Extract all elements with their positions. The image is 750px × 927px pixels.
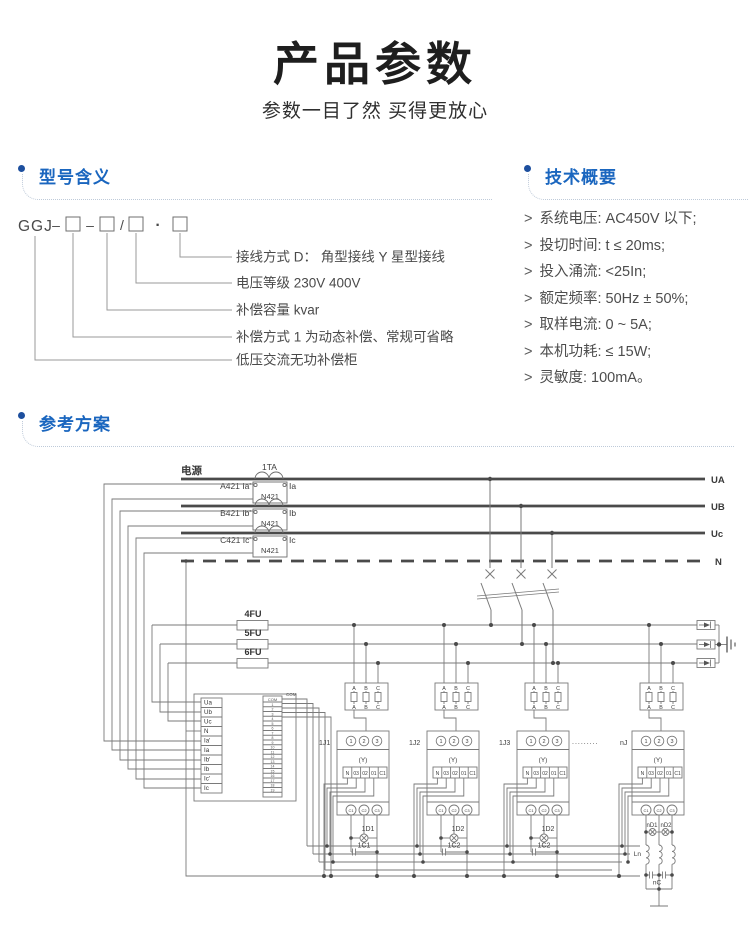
controller-terminal-label: Ia' <box>204 738 210 745</box>
dotted-rule <box>22 174 492 200</box>
fuse-label: 6FU <box>244 647 261 657</box>
gt-marker: > <box>524 312 532 339</box>
ct-out: Ia <box>289 481 296 491</box>
gt-marker: > <box>524 206 532 233</box>
tech-section-header: 技术概要 <box>524 163 748 205</box>
strip-number: 17 <box>271 779 275 783</box>
module-id: 1J2 <box>409 740 420 747</box>
fuse-label: 4FU <box>244 609 261 619</box>
strip-number: 2 <box>272 708 274 712</box>
bus-label-uc: Uc <box>711 529 723 540</box>
power-buses <box>181 479 705 561</box>
strip-number: 16 <box>271 774 275 778</box>
strip-number: 14 <box>271 765 275 769</box>
strip-number: 9 <box>272 741 274 745</box>
ct-mid: N421 <box>261 492 279 501</box>
controller-terminal-label: Ib <box>204 766 210 773</box>
strip-number: 3 <box>272 712 274 716</box>
surge-arresters <box>697 621 727 668</box>
controller-terminal-label: Ia <box>204 747 210 754</box>
module-id: 1J1 <box>319 740 330 747</box>
controller-terminal-label: N <box>204 728 208 735</box>
fuse-label: 5FU <box>244 628 261 638</box>
gt-marker: > <box>524 339 532 366</box>
strip-number: 18 <box>271 784 275 788</box>
strip-number: 15 <box>271 769 275 773</box>
module-ellipsis: ......... <box>572 739 599 746</box>
inductor-coil <box>672 845 675 864</box>
inductor-coil <box>646 845 649 864</box>
module-id: nJ <box>620 740 627 747</box>
ct-group-label: 1TA <box>262 462 277 472</box>
bus-label-ub: UB <box>711 502 725 513</box>
tech-spec-item: >额定频率: 50Hz ± 50%; <box>524 286 750 313</box>
cap-label: nC <box>653 880 662 887</box>
controller-terminal-label: Ua <box>204 700 212 707</box>
tech-spec-item: >取样电流: 0 ~ 5A; <box>524 312 750 339</box>
lamp-label: 1D2 <box>542 826 555 833</box>
bullet-dot-icon <box>524 165 531 172</box>
strip-number: 12 <box>271 755 275 759</box>
page-subtitle: 参数一目了然 买得更放心 <box>0 96 750 123</box>
controller-terminal-label: Ib' <box>204 757 210 764</box>
cap-label: 1C2 <box>448 843 461 850</box>
tech-spec-item: >投入涌流: <25In; <box>524 259 750 286</box>
module-nj: ......... nJ nD1 nD2 Ln nC <box>572 623 684 906</box>
model-code-sep: – <box>52 217 60 233</box>
bullet-dot-icon <box>18 165 25 172</box>
tech-spec-item: >投切时间: t ≤ 20ms; <box>524 233 750 260</box>
model-label: 补偿方式 1 为动态补偿、常规可省略 <box>236 330 454 345</box>
module-1j2: 1J2 1D2 1C2 <box>409 623 479 878</box>
capacitor-module-body <box>517 683 569 815</box>
module-1j3: 1J3 1D2 1C2 <box>499 623 569 878</box>
tech-spec-text: 灵敏度: 100mA。 <box>539 365 651 392</box>
strip-number: 19 <box>271 788 275 792</box>
cap-label: 1C1 <box>358 843 371 850</box>
ct-labels: 1TA A421 Ia' N421 Ia B421 Ib' N421 Ib C4… <box>220 462 296 555</box>
dotted-rule <box>528 174 748 200</box>
lamp-label: nD2 <box>660 823 672 829</box>
ct-out: Ib <box>289 508 296 518</box>
junction-dot <box>717 642 721 646</box>
fuse-symbol <box>237 659 268 669</box>
gt-marker: > <box>524 365 532 392</box>
left-wiring-mesh <box>104 484 640 876</box>
page-title: 产品参数 <box>0 28 750 94</box>
module-1j1: 1J1 1D1 1C1 <box>319 623 389 878</box>
controller-terminal-label: Ub <box>204 709 212 716</box>
current-transformers <box>253 472 287 557</box>
strip-note: COM <box>286 692 297 697</box>
circuit-diagram: A B C A B C 1 2 3 (Y) N 03 02 <box>0 440 750 927</box>
controller-terminal-label: Uc <box>204 719 212 726</box>
capacitor-module-body <box>427 683 479 815</box>
tech-spec-text: 系统电压: AC450V 以下; <box>539 206 696 233</box>
distribution-lines <box>152 621 697 669</box>
strip-number: 4 <box>272 717 274 721</box>
model-label: 补偿容量 kvar <box>236 302 320 318</box>
inductor-label: Ln <box>634 851 642 858</box>
model-label: 接线方式 D： 角型接线 Y 星型接线 <box>236 249 445 265</box>
ct-mid: N421 <box>261 519 279 528</box>
ct-tag: C421 Ic' <box>220 535 251 545</box>
bus-label-ua: UA <box>711 475 725 486</box>
module-id: 1J3 <box>499 740 510 747</box>
strip-number: 1 <box>272 703 274 707</box>
ct-tag: B421 Ib' <box>220 508 251 518</box>
tech-spec-item: >系统电压: AC450V 以下; <box>524 206 750 233</box>
controller-terminal-label: Ic' <box>204 776 210 783</box>
gt-marker: > <box>524 286 532 313</box>
model-section-header: 型号含义 <box>18 163 492 205</box>
strip-number: 11 <box>271 750 275 754</box>
strip-number: 7 <box>272 731 274 735</box>
bullet-dot-icon <box>18 412 25 419</box>
model-code-lines <box>35 217 232 360</box>
model-code-diagram: GGJ – – / · 接线方式 D： 角型接线 Y 星型接线 电压等级 230… <box>18 206 498 378</box>
lamp-label: 1D2 <box>452 826 465 833</box>
model-label: 低压交流无功补偿柜 <box>236 352 358 368</box>
junction-dot <box>184 559 188 563</box>
tech-spec-text: 额定频率: 50Hz ± 50%; <box>539 286 688 313</box>
strip-number: 6 <box>272 727 274 731</box>
junction-dot <box>329 874 333 878</box>
cap-label: 1C2 <box>538 843 551 850</box>
gt-marker: > <box>524 259 532 286</box>
power-label: 电源 <box>181 464 202 477</box>
strip-number: 5 <box>272 722 274 726</box>
ct-mid: N421 <box>261 546 279 555</box>
model-label: 电压等级 230V 400V <box>236 275 361 291</box>
lamp-label: 1D1 <box>362 826 375 833</box>
tech-spec-text: 取样电流: 0 ~ 5A; <box>539 312 651 339</box>
controller-terminal-label: Ic <box>204 785 209 792</box>
tech-spec-item: >灵敏度: 100mA。 <box>524 365 750 392</box>
strip-number: 10 <box>271 746 275 750</box>
fuse-labels: 4FU 5FU 6FU <box>244 609 261 657</box>
model-code-sep: · <box>155 217 160 234</box>
control-wire-bundle <box>282 699 640 876</box>
lamp-label: nD1 <box>646 823 658 829</box>
model-code-sep: – <box>86 217 94 233</box>
strip-number: 13 <box>271 760 275 764</box>
ct-tag: A421 Ia' <box>220 481 251 491</box>
tech-spec-item: >本机功耗: ≤ 15W; <box>524 339 750 366</box>
gt-marker: > <box>524 233 532 260</box>
strip-header: COM <box>268 697 277 702</box>
strip-number: 8 <box>272 736 274 740</box>
tech-spec-text: 本机功耗: ≤ 15W; <box>539 339 651 366</box>
ground-icon <box>727 637 735 653</box>
model-code-sep: / <box>120 217 124 233</box>
model-code-name: GGJ <box>18 218 53 235</box>
inductor-coil <box>659 845 662 864</box>
tech-spec-list: >系统电压: AC450V 以下; >投切时间: t ≤ 20ms; >投入涌流… <box>524 206 750 392</box>
bus-label-n: N <box>715 557 722 568</box>
ct-out: Ic <box>289 535 296 545</box>
tech-spec-text: 投入涌流: <25In; <box>539 259 646 286</box>
capacitor-module-body <box>337 683 389 815</box>
capacitor-module-body <box>632 683 684 815</box>
tech-spec-text: 投切时间: t ≤ 20ms; <box>539 233 665 260</box>
